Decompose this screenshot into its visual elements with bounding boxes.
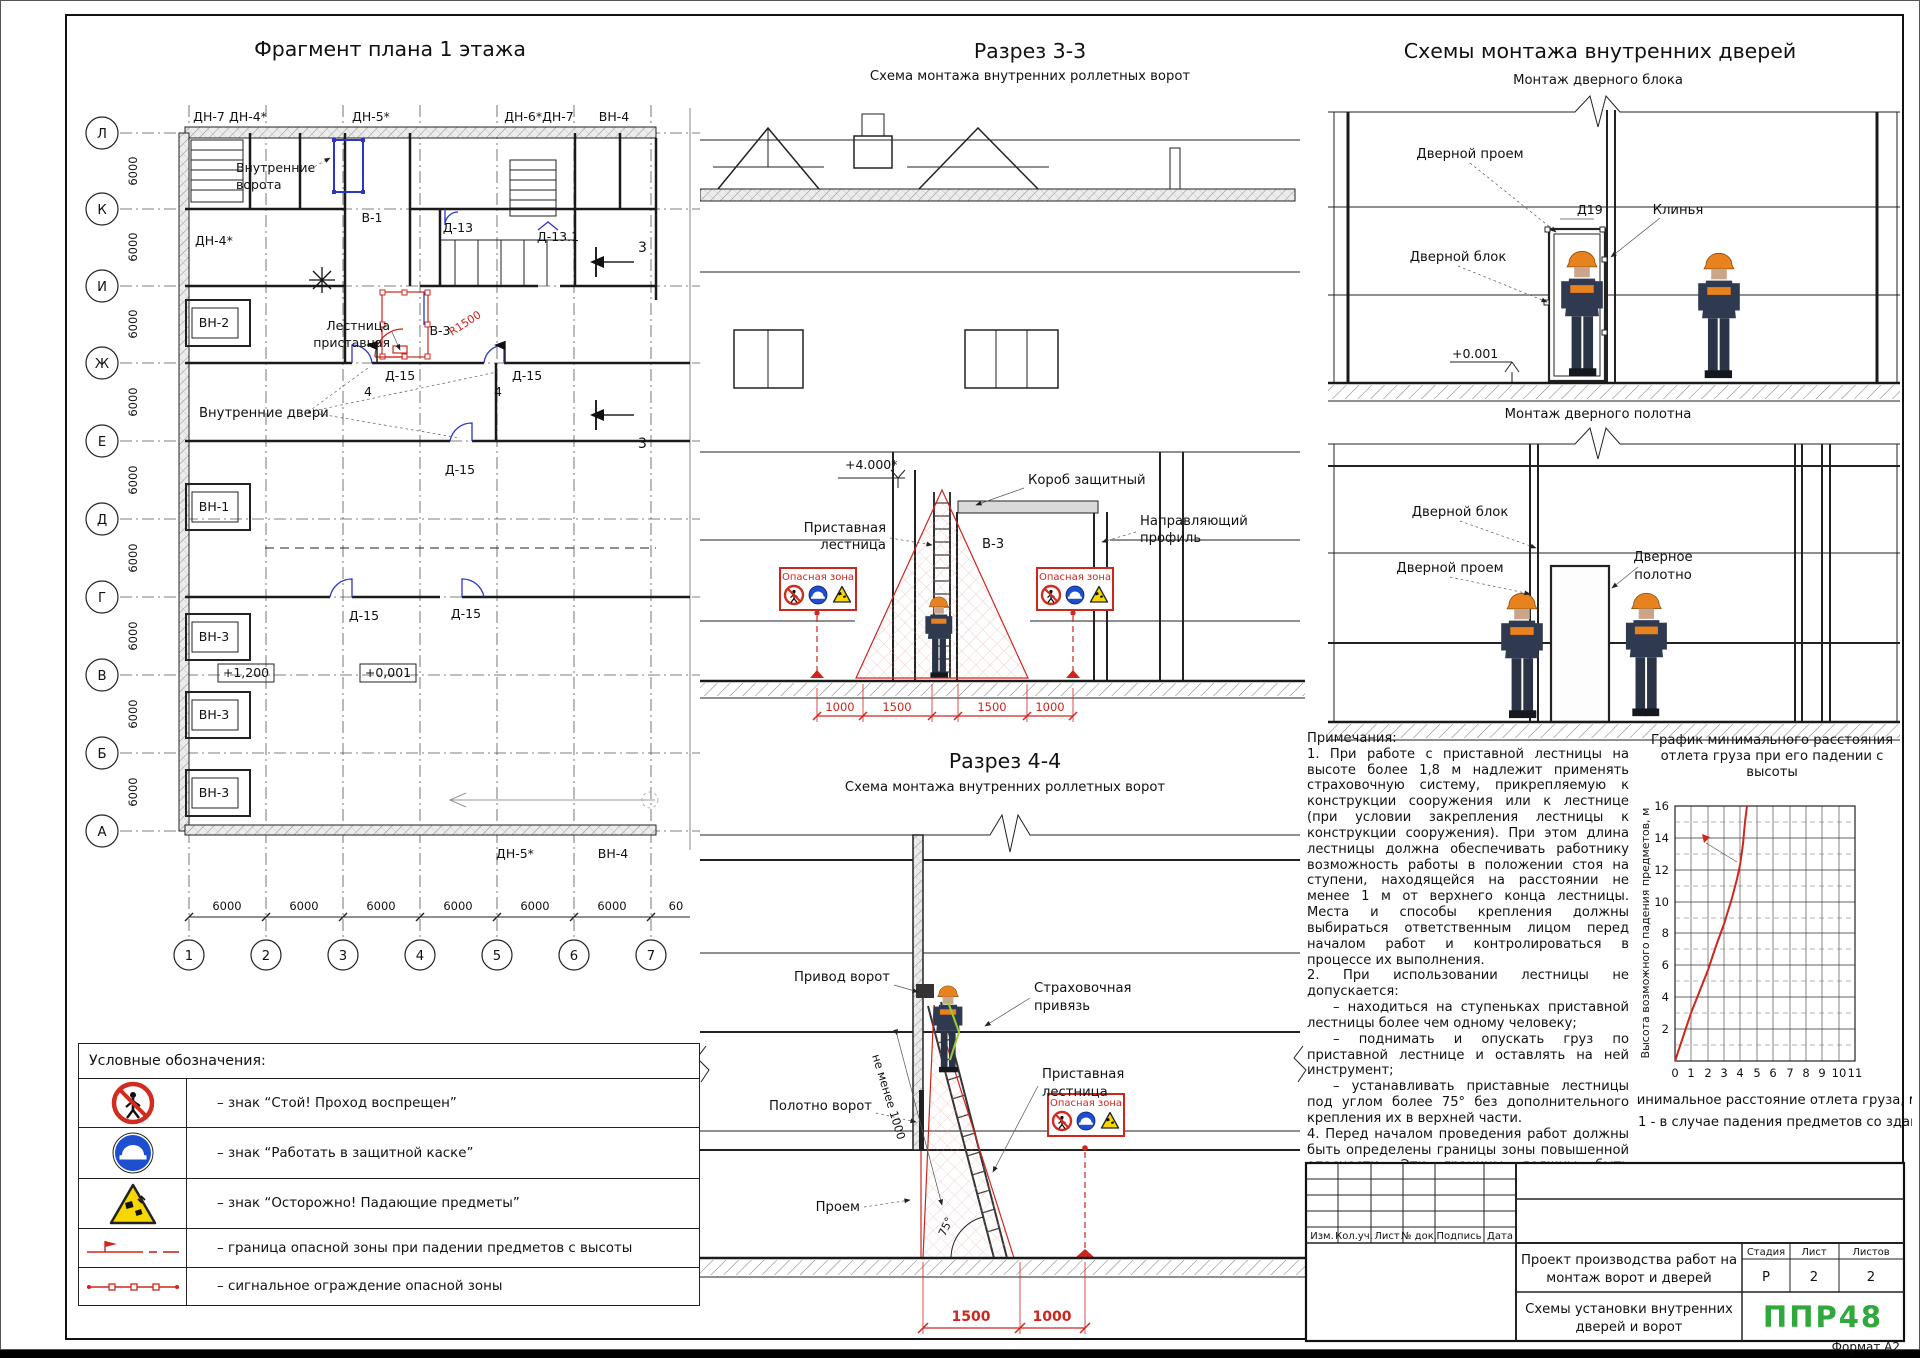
- svg-text:6: 6: [1662, 958, 1669, 972]
- svg-text:6000: 6000: [126, 232, 140, 261]
- mark-dn6-dn7: ДН-6*ДН-7: [504, 109, 574, 124]
- level-plus1200: +1,200: [223, 665, 269, 680]
- door-opening-label: Дверной проем: [1396, 561, 1503, 576]
- cut-4-label: 4: [494, 384, 502, 399]
- ladder-label: Приставная: [804, 521, 886, 536]
- svg-text:5: 5: [1753, 1066, 1760, 1080]
- svg-text:12: 12: [1654, 863, 1669, 877]
- svg-text:1500: 1500: [977, 700, 1006, 714]
- gate-box-label: ВН-3: [199, 629, 229, 644]
- chart-title: График минимального расстояния: [1651, 733, 1893, 748]
- no-entry-icon: [79, 1079, 187, 1127]
- svg-text:6000: 6000: [126, 387, 140, 416]
- level-plus0001: +0,001: [365, 665, 411, 680]
- note-item: 1. При работе с приставной лестницы на в…: [1307, 747, 1629, 969]
- legend-text: – сигнальное ограждение опасной зоны: [187, 1268, 699, 1305]
- svg-text:1500: 1500: [952, 1309, 991, 1325]
- signal-fence-line-icon: [79, 1268, 187, 1305]
- bottom-strip: [0, 1350, 1920, 1358]
- svg-text:6000: 6000: [126, 621, 140, 650]
- d131-label: Д-13.1: [537, 229, 579, 244]
- star-symbol: [309, 267, 335, 293]
- min-1000-label: не менее 1000: [869, 1052, 908, 1141]
- legend-text: – знак “Осторожно! Падающие предметы”: [187, 1179, 699, 1228]
- svg-text:6000: 6000: [366, 899, 395, 913]
- axis-number: 4: [416, 949, 424, 964]
- svg-text:9: 9: [1818, 1066, 1825, 1080]
- chart-title: отлета груза при его падении с: [1661, 749, 1884, 764]
- legend-row: – граница опасной зоны при падении предм…: [79, 1229, 699, 1268]
- stage-header: Стадия: [1747, 1247, 1785, 1258]
- axis-letter: Г: [98, 591, 106, 606]
- rev-header: Изм.: [1310, 1231, 1334, 1242]
- v3-label: В-3: [429, 323, 450, 338]
- legend-text: – знак “Стой! Проход воспрещен”: [187, 1079, 699, 1127]
- chart-grid: [1675, 806, 1855, 1061]
- chart-caption: 1 - в случае падения предметов со здания: [1638, 1115, 1912, 1130]
- section4-floor: [700, 1258, 1310, 1277]
- chart-curve: [1675, 806, 1747, 1061]
- sheet-name: Схемы установки внутренних: [1525, 1302, 1733, 1317]
- axis-letter: Б: [97, 747, 106, 762]
- svg-text:1000: 1000: [1035, 700, 1064, 714]
- svg-text:16: 16: [1654, 799, 1669, 813]
- opening-label: Проем: [816, 1200, 860, 1215]
- v3-label: В-3: [982, 537, 1004, 552]
- svg-text:6000: 6000: [126, 699, 140, 728]
- door-schemes-drawing: Схемы монтажа внутренних дверей Монтаж д…: [1316, 30, 1912, 750]
- legend-row: – знак “Работать в защитной каске”: [79, 1128, 699, 1179]
- cut-3-label: 3: [638, 436, 647, 452]
- plan-title: Фрагмент плана 1 этажа: [254, 37, 526, 61]
- gate-box-label: ВН-3: [199, 707, 229, 722]
- section4-subtitle: Схема монтажа внутренних роллетных ворот: [845, 780, 1165, 795]
- axis-number: 5: [493, 949, 501, 964]
- sheets-header: Листов: [1852, 1247, 1889, 1258]
- ladder-label: лестница: [1042, 1085, 1108, 1100]
- axis-letter: И: [97, 280, 107, 295]
- svg-text:6000: 6000: [126, 156, 140, 185]
- level-0001-label: +0.001: [1452, 346, 1498, 361]
- legend-box: Условные обозначения: – знак “Стой! Прох…: [78, 1043, 700, 1306]
- row-dims: 6000 6000 6000 6000 6000 6000 6000 6000 …: [126, 156, 140, 806]
- d15-label: Д-15: [445, 462, 475, 477]
- svg-text:2: 2: [1704, 1066, 1711, 1080]
- svg-text:11: 11: [1848, 1066, 1863, 1080]
- floor-plan-drawing: Фрагмент плана 1 этажа: [40, 30, 720, 990]
- axis-letter: В: [97, 669, 106, 684]
- section-3-3-drawing: Разрез 3-3 Схема монтажа внутренних ролл…: [700, 30, 1310, 730]
- scheme2-title: Монтаж дверного полотна: [1505, 407, 1692, 422]
- stage-value: Р: [1762, 1270, 1770, 1285]
- svg-text:6000: 6000: [126, 777, 140, 806]
- section3-cut-marks: 3 3: [590, 240, 647, 452]
- rev-header: Подпись: [1437, 1231, 1482, 1242]
- gate-box-label: ВН-3: [199, 785, 229, 800]
- col-axis-bubbles: 1 2 3 4 5 6 7: [174, 940, 666, 970]
- ladder-label: приставная: [313, 335, 390, 350]
- axis-letter: Ж: [95, 357, 109, 372]
- svg-text:6000: 6000: [126, 543, 140, 572]
- ladder-label: лестница: [820, 538, 886, 553]
- r1500-label: R1500: [447, 308, 484, 338]
- project-name: Проект производства работ на: [1521, 1252, 1737, 1268]
- svg-text:2: 2: [1662, 1022, 1669, 1036]
- rev-header: № док.: [1401, 1231, 1437, 1242]
- rev-header: Лист: [1374, 1231, 1400, 1242]
- legend-title: Условные обозначения:: [79, 1044, 699, 1079]
- project-name: монтаж ворот и дверей: [1546, 1271, 1711, 1286]
- door-block-label: Дверной блок: [1410, 249, 1507, 265]
- svg-text:1: 1: [1687, 1066, 1694, 1080]
- zone-boundary-post: [1075, 1145, 1095, 1258]
- ppr48-logo: ППР48: [1763, 1300, 1883, 1334]
- row-axis-bubbles: Л К И Ж Е Д Г В Б А: [86, 117, 118, 847]
- section4-title: Разрез 4-4: [949, 749, 1061, 773]
- svg-text:3: 3: [1720, 1066, 1727, 1080]
- section3-subtitle: Схема монтажа внутренних роллетных ворот: [870, 69, 1190, 84]
- section4-structure: [700, 815, 1306, 1258]
- title-block: Изм. Кол.уч. Лист № док. Подпись Дата Пр…: [1304, 1161, 1910, 1347]
- svg-text:4: 4: [1662, 990, 1669, 1004]
- sheet-value: 2: [1810, 1270, 1818, 1285]
- legend-row: – знак “Стой! Проход воспрещен”: [79, 1079, 699, 1128]
- harness-label: привязь: [1034, 999, 1090, 1014]
- svg-text:10: 10: [1832, 1066, 1847, 1080]
- svg-text:6000: 6000: [126, 309, 140, 338]
- chart-title: высоты: [1746, 765, 1798, 780]
- cut-3-label: 3: [638, 240, 647, 256]
- scheme1-title: Монтаж дверного блока: [1513, 72, 1683, 88]
- note-bullet: – устанавливать приставные лестницы под …: [1307, 1079, 1629, 1126]
- scheme2-labels: Дверной блок Дверной проем Дверное полот…: [1396, 504, 1692, 594]
- d15-label: Д-15: [512, 368, 542, 383]
- d13-label: Д-13: [443, 220, 473, 235]
- plan-walls: [179, 108, 690, 850]
- svg-text:6000: 6000: [126, 465, 140, 494]
- svg-text:6000: 6000: [597, 899, 626, 913]
- chart-x-ticks: 0 1 2 3 4 5 6 7 8 9 10 11: [1671, 1066, 1862, 1080]
- gate-drive-label: Привод ворот: [794, 970, 890, 985]
- d15-label: Д-15: [349, 608, 379, 623]
- svg-text:6: 6: [1769, 1066, 1776, 1080]
- fall-distance-chart: График минимального расстояния отлета гр…: [1636, 726, 1912, 1132]
- axis-number: 1: [185, 949, 193, 964]
- axis-letter: Д: [97, 513, 107, 528]
- axis-number: 3: [339, 949, 347, 964]
- gate-box-label: ВН-1: [199, 499, 229, 514]
- legend-row: – знак “Осторожно! Падающие предметы”: [79, 1179, 699, 1229]
- sheet-name: дверей и ворот: [1576, 1320, 1683, 1335]
- note-item: 2. При использовании лестницы не допуска…: [1307, 968, 1629, 1000]
- svg-text:0: 0: [1671, 1066, 1678, 1080]
- legend-row: – сигнальное ограждение опасной зоны: [79, 1268, 699, 1305]
- mark-vn4: ВН-4: [599, 109, 629, 124]
- mark-vn4-bottom: ВН-4: [598, 846, 628, 861]
- harness-label: Страховочная: [1034, 981, 1131, 996]
- d15-label: Д-15: [451, 606, 481, 621]
- inner-doors-label: Внутренние двери: [199, 406, 329, 421]
- mark-dn7: ДН-7: [193, 109, 225, 124]
- d19-label: Д19: [1577, 202, 1603, 217]
- level-4000-label: +4.000*: [845, 457, 898, 472]
- svg-text:6000: 6000: [443, 899, 472, 913]
- helmet-icon: [79, 1128, 187, 1178]
- mark-dn5: ДН-5*: [352, 109, 390, 124]
- axis-letter: А: [97, 825, 106, 840]
- wedges-label: Клинья: [1653, 203, 1704, 218]
- axis-letter: К: [97, 203, 107, 218]
- col-dims: 6000 6000 6000 6000 6000 6000 60: [185, 899, 690, 921]
- sheet-header: Лист: [1801, 1247, 1827, 1258]
- mark-dn4: ДН-4*: [229, 109, 267, 124]
- notes-title: Примечания:: [1307, 731, 1629, 747]
- rev-header: Кол.уч.: [1335, 1231, 1373, 1242]
- gate-boxes: ВН-2 ВН-1 ВН-3 ВН-3 ВН-3: [186, 300, 250, 816]
- inner-gates-label: ворота: [236, 177, 282, 192]
- d15-label: Д-15: [385, 368, 415, 383]
- scheme1-floor: [1328, 383, 1900, 401]
- gate-leaf-label: Полотно ворот: [769, 1099, 872, 1114]
- notes-block: Примечания: 1. При работе с приставной л…: [1307, 731, 1629, 1222]
- chart-xlabel: Минимальное расстояние отлета груза, м: [1636, 1093, 1912, 1108]
- dn4-left-label: ДН-4*: [195, 233, 233, 248]
- axis-number: 7: [647, 949, 655, 964]
- level-mark-4000: +4.000*: [838, 457, 905, 488]
- scheme1-structure: [1328, 96, 1900, 383]
- sheets-value: 2: [1867, 1270, 1875, 1285]
- axis-number: 6: [570, 949, 578, 964]
- axis-letter: Е: [98, 435, 106, 450]
- svg-text:6000: 6000: [289, 899, 318, 913]
- drawing-sheet: Формат А2: [0, 0, 1920, 1358]
- legend-text: – знак “Работать в защитной каске”: [187, 1128, 699, 1178]
- svg-text:4: 4: [1736, 1066, 1743, 1080]
- door-block-label: Дверной блок: [1412, 504, 1509, 520]
- doors-title: Схемы монтажа внутренних дверей: [1404, 39, 1796, 63]
- mark-dn5-bottom: ДН-5*: [496, 846, 534, 861]
- door-leaf-label: полотно: [1634, 568, 1692, 583]
- gate-box-label: ВН-2: [199, 315, 229, 330]
- legend-text: – граница опасной зоны при падении предм…: [187, 1229, 699, 1267]
- axis-letter: Л: [97, 127, 107, 142]
- svg-text:10: 10: [1654, 895, 1669, 909]
- axis-number: 2: [262, 949, 270, 964]
- svg-text:1000: 1000: [1033, 1309, 1072, 1325]
- danger-boundary-line-icon: [79, 1229, 187, 1267]
- section-4-4-drawing: Разрез 4-4 Схема монтажа внутренних ролл…: [700, 740, 1312, 1345]
- svg-text:1500: 1500: [882, 700, 911, 714]
- door-leaf-label: Дверное: [1633, 550, 1692, 565]
- level-marks: +1,200 +0,001: [218, 664, 416, 682]
- ladder-label: Лестница: [326, 318, 390, 333]
- svg-text:8: 8: [1662, 926, 1669, 940]
- note-bullet: – находиться на ступеньках приставной ле…: [1307, 1000, 1629, 1032]
- falling-objects-icon: [79, 1179, 187, 1228]
- ground: [700, 681, 1305, 698]
- door-opening-label: Дверной проем: [1416, 147, 1523, 162]
- chart-y-ticks: 2 4 6 8 10 12 14 16: [1654, 799, 1669, 1036]
- svg-text:8: 8: [1802, 1066, 1809, 1080]
- guide-profile-label: Направляющий: [1140, 514, 1248, 529]
- ladder-label: Приставная: [1042, 1067, 1124, 1082]
- korob-label: Короб защитный: [1028, 472, 1146, 488]
- note-bullet: – поднимать и опускать груз по приставно…: [1307, 1032, 1629, 1079]
- door-leaf: [1551, 566, 1609, 722]
- svg-text:60: 60: [669, 899, 684, 913]
- plan-leaders: [305, 158, 658, 808]
- cut-4-label: 4: [364, 384, 372, 399]
- svg-text:14: 14: [1654, 831, 1669, 845]
- svg-text:1000: 1000: [825, 700, 854, 714]
- svg-text:6000: 6000: [212, 899, 241, 913]
- rev-header: Дата: [1487, 1231, 1513, 1242]
- svg-text:6000: 6000: [520, 899, 549, 913]
- svg-text:7: 7: [1786, 1066, 1793, 1080]
- v1-label: В-1: [361, 210, 382, 225]
- guide-profile-label: профиль: [1140, 531, 1201, 546]
- chart-ylabel: Высота возможного падения предметов, м: [1639, 808, 1652, 1059]
- inner-gates-label: Внутренние: [236, 160, 316, 175]
- section3-title: Разрез 3-3: [974, 39, 1086, 63]
